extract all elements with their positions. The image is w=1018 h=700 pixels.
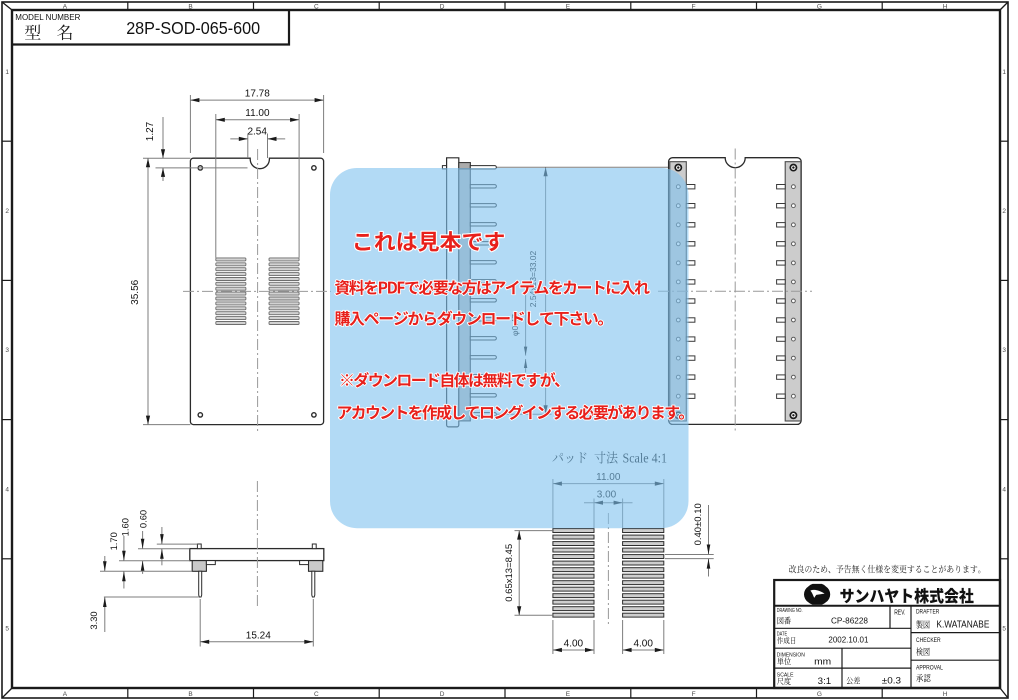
svg-text:3: 3 [1002,347,1006,354]
svg-text:1: 1 [1002,69,1006,76]
svg-text:28P-SOD-065-600: 28P-SOD-065-600 [126,18,260,38]
svg-text:1: 1 [5,69,9,76]
svg-text:CP-86228: CP-86228 [831,615,868,625]
svg-text:K.WATANABE: K.WATANABE [936,619,989,630]
svg-text:DRAFTER: DRAFTER [916,609,939,616]
svg-text:G: G [817,4,822,11]
svg-text:3:1: 3:1 [818,676,832,686]
svg-text:B: B [188,691,192,698]
svg-text:REV.: REV. [894,608,905,617]
svg-text:C: C [314,4,319,11]
svg-text:G: G [817,691,822,698]
svg-text:0.60: 0.60 [137,510,148,528]
svg-text:D: D [440,691,445,698]
svg-text:15.24: 15.24 [246,630,271,641]
svg-text:2: 2 [5,208,9,215]
svg-text:MODEL NUMBER: MODEL NUMBER [15,13,80,22]
svg-text:3: 3 [5,347,9,354]
svg-text:4.00: 4.00 [633,638,653,649]
svg-text:F: F [692,4,696,11]
svg-text:5: 5 [5,626,9,633]
svg-text:2: 2 [1002,208,1006,215]
svg-text:11.00: 11.00 [245,108,270,119]
svg-text:35.56: 35.56 [130,279,141,304]
svg-text:E: E [566,4,571,11]
svg-text:DATE: DATE [777,632,788,638]
svg-text:A: A [63,4,68,11]
svg-text:0.65x13=8.45: 0.65x13=8.45 [504,544,515,602]
svg-text:H: H [943,691,948,698]
svg-text:1.70: 1.70 [108,532,119,550]
svg-text:±0.3: ±0.3 [882,676,901,686]
svg-text:E: E [566,691,571,698]
svg-text:17.78: 17.78 [245,89,270,100]
svg-text:B: B [188,4,192,11]
svg-text:2.54: 2.54 [247,127,267,138]
svg-text:3.30: 3.30 [88,611,99,629]
svg-text:CHECKER: CHECKER [916,637,941,644]
svg-text:F: F [692,691,696,698]
svg-text:D: D [440,4,445,11]
svg-text:4.00: 4.00 [564,638,584,649]
svg-text:1.60: 1.60 [120,518,131,536]
svg-text:4: 4 [5,486,9,493]
svg-text:SCALE: SCALE [777,673,794,679]
svg-text:mm: mm [814,656,831,667]
svg-text:5: 5 [1002,626,1006,633]
svg-text:0.40±0.10: 0.40±0.10 [693,503,704,545]
svg-text:DIMENSION: DIMENSION [777,652,805,658]
svg-text:C: C [314,691,319,698]
svg-text:A: A [63,691,68,698]
svg-text:H: H [943,4,948,11]
svg-text:2002.10.01: 2002.10.01 [828,635,868,645]
svg-text:1.27: 1.27 [145,121,156,141]
svg-text:APPROVAL: APPROVAL [916,665,943,672]
svg-text:DRAWING NO.: DRAWING NO. [777,608,803,614]
svg-text:4: 4 [1002,486,1006,493]
